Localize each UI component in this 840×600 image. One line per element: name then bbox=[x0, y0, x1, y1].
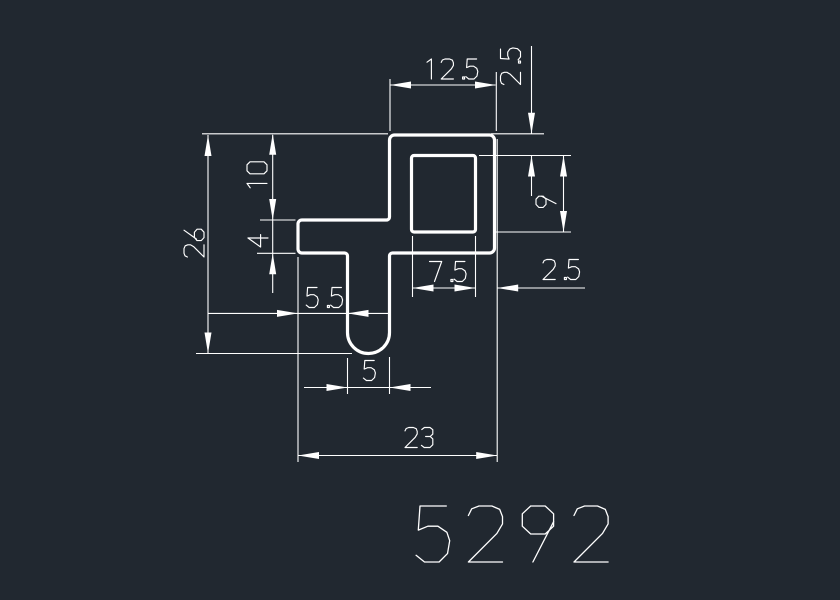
cad-viewport bbox=[0, 0, 840, 600]
cad-canvas[interactable] bbox=[0, 0, 840, 600]
